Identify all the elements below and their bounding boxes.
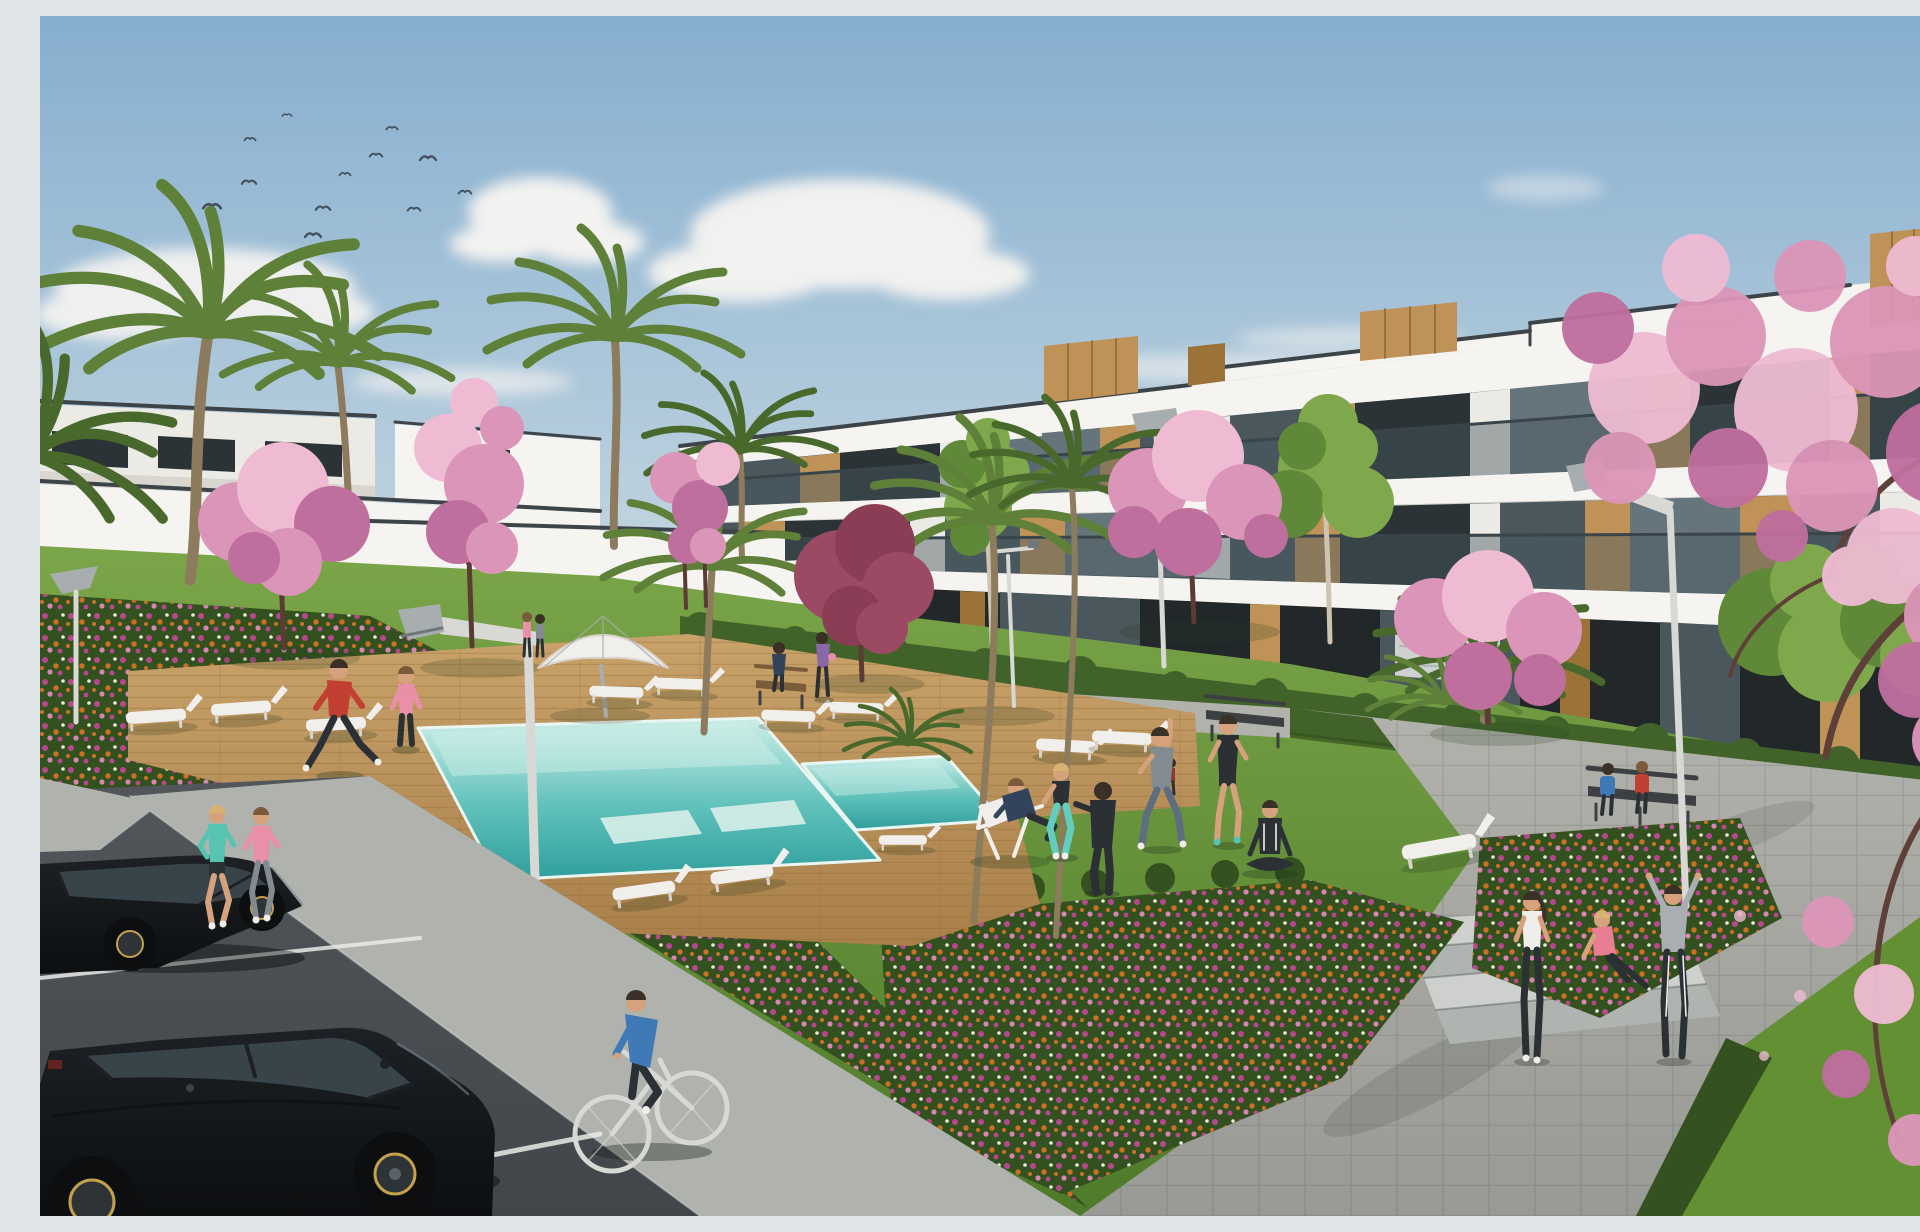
architectural-render: 3D architect's render of a modern white … [40, 16, 1920, 1216]
cloud [1487, 175, 1603, 201]
